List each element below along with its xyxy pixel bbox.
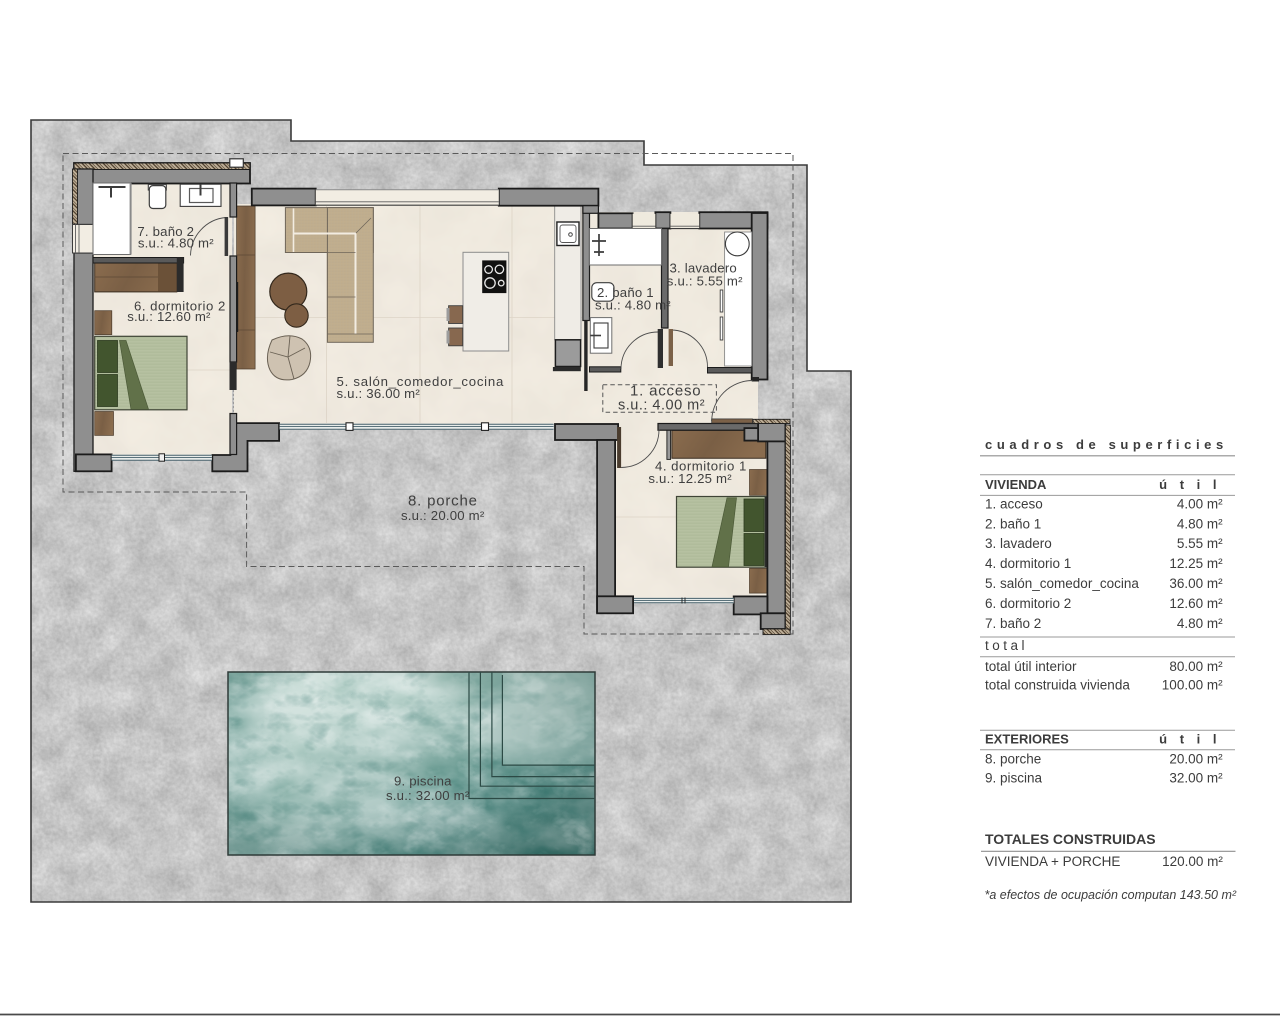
svg-text:32.00 m²: 32.00 m² (1169, 771, 1223, 786)
svg-text:9. piscina: 9. piscina (394, 774, 452, 789)
svg-text:120.00 m²: 120.00 m² (1162, 854, 1223, 869)
svg-text:7. baño 2: 7. baño 2 (985, 616, 1041, 631)
svg-text:s.u.: 5.55 m²: s.u.: 5.55 m² (667, 273, 743, 288)
svg-text:100.00 m²: 100.00 m² (1162, 678, 1223, 693)
svg-text:9. piscina: 9. piscina (985, 771, 1043, 786)
svg-text:4.80 m²: 4.80 m² (1177, 516, 1223, 531)
svg-text:20.00 m²: 20.00 m² (1169, 751, 1223, 766)
svg-text:s.u.: 4.00 m²: s.u.: 4.00 m² (618, 398, 705, 414)
svg-text:VIVIENDA: VIVIENDA (985, 477, 1047, 492)
svg-text:12.25 m²: 12.25 m² (1169, 556, 1223, 571)
svg-text:3. lavadero: 3. lavadero (985, 536, 1052, 551)
svg-text:6. dormitorio 2: 6. dormitorio 2 (985, 596, 1071, 611)
svg-text:s.u.: 36.00 m²: s.u.: 36.00 m² (337, 386, 421, 401)
svg-text:4.80 m²: 4.80 m² (1177, 616, 1223, 631)
svg-text:s.u.: 20.00 m²: s.u.: 20.00 m² (401, 508, 485, 523)
svg-text:s.u.: 12.60 m²: s.u.: 12.60 m² (127, 309, 211, 324)
svg-text:ú t i l: ú t i l (1159, 477, 1221, 492)
svg-text:4. dormitorio 1: 4. dormitorio 1 (985, 556, 1071, 571)
svg-text:total: total (985, 638, 1028, 653)
svg-text:total útil interior: total útil interior (985, 659, 1077, 674)
svg-text:s.u.: 4.80 m²: s.u.: 4.80 m² (595, 298, 671, 313)
svg-text:s.u.: 12.25 m²: s.u.: 12.25 m² (648, 471, 732, 486)
svg-text:total construida vivienda: total construida vivienda (985, 678, 1130, 693)
svg-text:s.u.: 32.00 m²: s.u.: 32.00 m² (386, 788, 470, 803)
svg-text:cuadros de superficies: cuadros de superficies (985, 437, 1228, 452)
svg-text:12.60 m²: 12.60 m² (1169, 596, 1223, 611)
svg-text:4.00 m²: 4.00 m² (1177, 497, 1223, 512)
svg-text:TOTALES CONSTRUIDAS: TOTALES CONSTRUIDAS (985, 831, 1156, 847)
svg-text:s.u.: 4.80 m²: s.u.: 4.80 m² (138, 236, 214, 251)
svg-text:ú t i l: ú t i l (1159, 732, 1221, 747)
svg-text:2. baño 1: 2. baño 1 (985, 516, 1041, 531)
svg-text:*a efectos de ocupación comput: *a efectos de ocupación computan 143.50 … (985, 888, 1237, 902)
svg-text:VIVIENDA + PORCHE: VIVIENDA + PORCHE (985, 854, 1120, 869)
svg-text:1. acceso: 1. acceso (985, 497, 1043, 512)
svg-text:5. salón_comedor_cocina: 5. salón_comedor_cocina (985, 576, 1139, 591)
svg-text:5.55 m²: 5.55 m² (1177, 536, 1223, 551)
svg-text:36.00 m²: 36.00 m² (1169, 576, 1223, 591)
svg-text:8. porche: 8. porche (985, 751, 1041, 766)
svg-text:80.00 m²: 80.00 m² (1169, 659, 1223, 674)
svg-text:EXTERIORES: EXTERIORES (985, 732, 1069, 747)
